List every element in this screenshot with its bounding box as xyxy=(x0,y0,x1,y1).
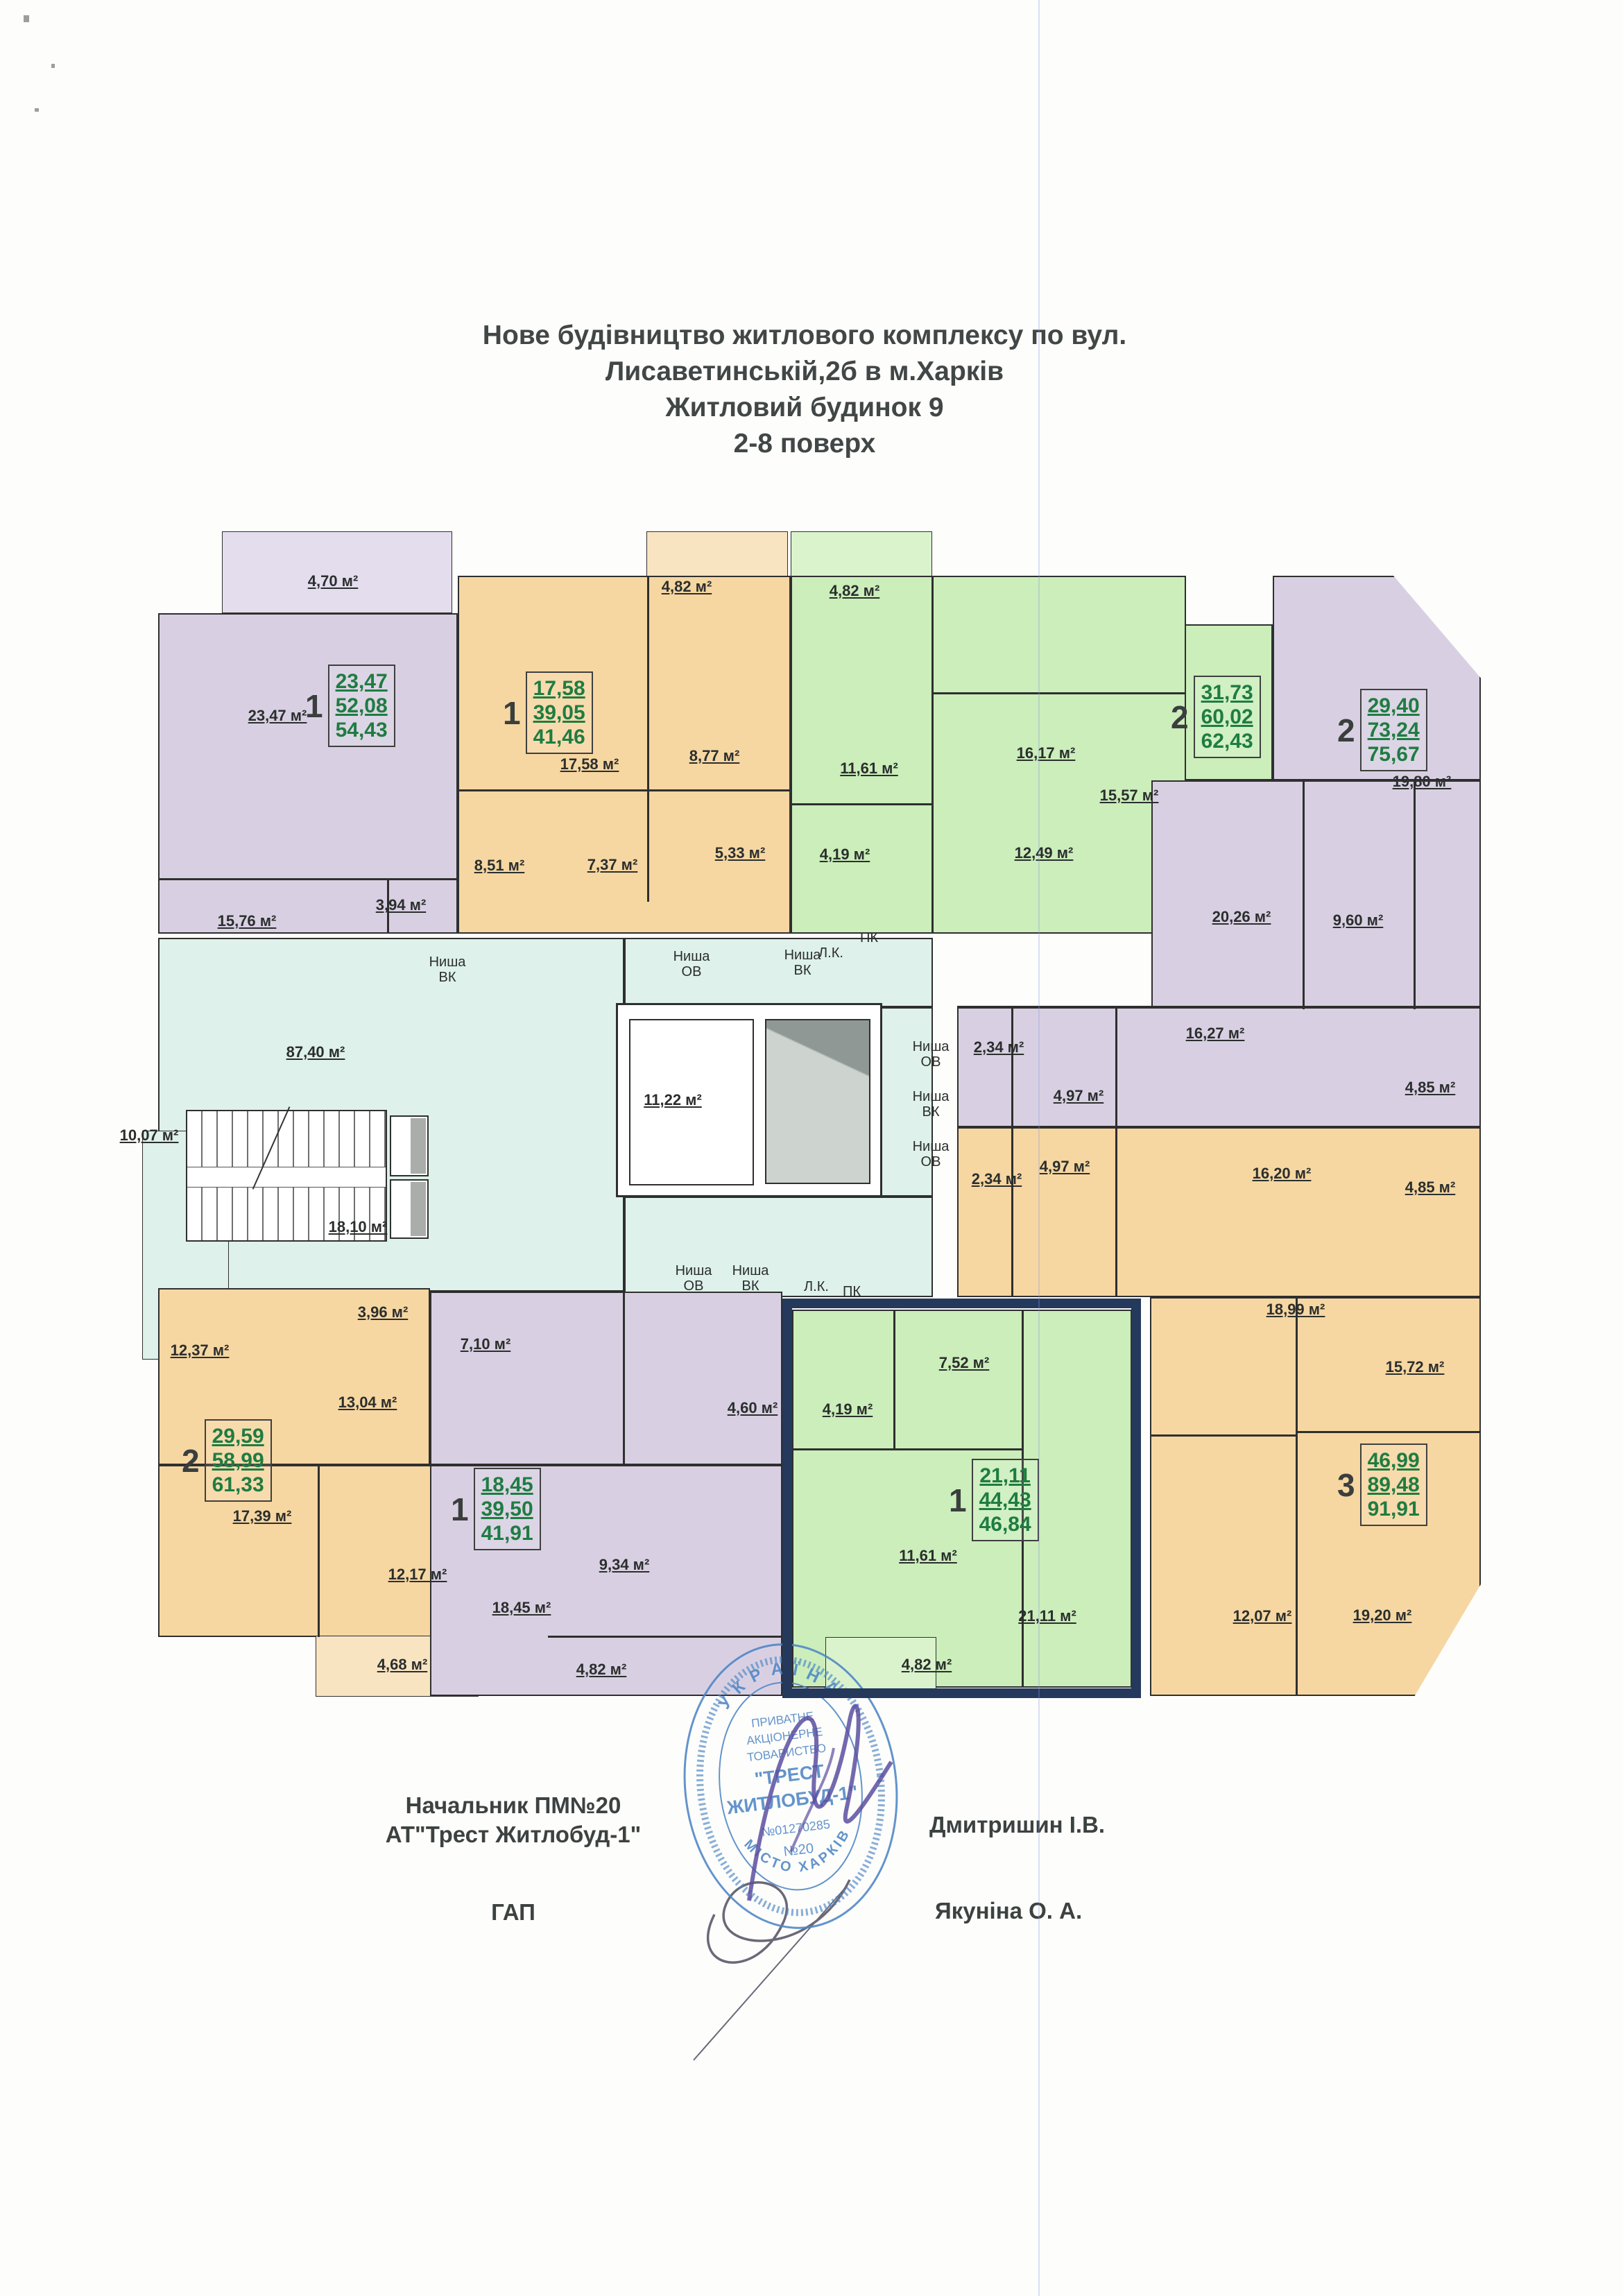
living-area: 29,40 xyxy=(1368,694,1420,718)
living-area: 31,73 xyxy=(1201,680,1253,705)
apartment-tag: 2 29,40 73,24 75,67 xyxy=(1337,689,1427,771)
area-label: 4,68 м² xyxy=(377,1656,428,1674)
area-label: 4,97 м² xyxy=(1040,1158,1090,1176)
scan-speck xyxy=(51,64,55,68)
area-label: 15,76 м² xyxy=(218,912,277,930)
apartment-tag: 1 17,58 39,05 41,46 xyxy=(503,671,593,754)
area-label: 8,77 м² xyxy=(689,747,740,765)
niche-label: Ниша ВК xyxy=(732,1263,769,1294)
apartment-areas-box: 29,59 58,99 61,33 xyxy=(205,1419,272,1502)
total-area: 91,91 xyxy=(1368,1497,1420,1521)
wall xyxy=(1150,1434,1296,1437)
area-label: 15,57 м² xyxy=(1100,787,1159,805)
title-line: 2-8 поверх xyxy=(319,426,1290,462)
selected-apartment-outline xyxy=(782,1299,1141,1698)
area-label: 12,37 м² xyxy=(171,1342,230,1360)
room-region-apartment xyxy=(957,1127,1481,1297)
wall xyxy=(647,577,649,902)
apartment-number: 3 xyxy=(1337,1466,1355,1504)
elevator-shaft-gray xyxy=(765,1019,870,1184)
area-label: 20,26 м² xyxy=(1212,908,1271,926)
apartment-number: 2 xyxy=(1171,699,1189,736)
apartment-area: 73,24 xyxy=(1368,718,1420,742)
stamp-line: ЖИТЛОБУД-1" xyxy=(725,1781,859,1818)
niche-label: Ниша ОВ xyxy=(673,949,710,979)
area-label: 11,22 м² xyxy=(644,1091,702,1109)
wall xyxy=(1115,1007,1117,1297)
area-label: 15,72 м² xyxy=(1386,1358,1445,1376)
room-region-apartment xyxy=(158,613,458,934)
stamp-line: №20 xyxy=(782,1841,814,1860)
area-label: 11,61 м² xyxy=(840,760,898,778)
wall xyxy=(158,878,458,880)
signatory-name: Дмитришин І.В. xyxy=(929,1812,1165,1838)
area-label: 4,60 м² xyxy=(728,1399,778,1417)
scan-speck xyxy=(35,108,39,112)
niche-label: Ниша ОВ xyxy=(676,1263,712,1294)
stair-landing xyxy=(187,1167,386,1188)
apartment-tag: 2 29,59 58,99 61,33 xyxy=(182,1419,272,1502)
room-region-apartment xyxy=(430,1292,782,1465)
area-label: 13,04 м² xyxy=(338,1394,397,1412)
wall xyxy=(623,1292,625,1465)
title-line: Лисаветинській,2б в м.Харків xyxy=(319,354,1290,390)
apartment-number: 1 xyxy=(305,687,323,725)
living-area: 46,99 xyxy=(1368,1448,1420,1473)
wall xyxy=(1296,1431,1481,1433)
apartment-areas-box: 23,47 52,08 54,43 xyxy=(328,665,395,747)
area-label: 19,80 м² xyxy=(1393,773,1452,791)
area-label: 19,20 м² xyxy=(1353,1607,1412,1625)
room-region-apartment xyxy=(1150,1297,1481,1696)
wall xyxy=(1303,780,1305,1009)
wall xyxy=(791,803,933,805)
title-line: Житловий будинок 9 xyxy=(319,390,1290,426)
area-label: 4,70 м² xyxy=(308,572,359,590)
wall xyxy=(1414,780,1416,1009)
total-area: 41,91 xyxy=(481,1521,533,1545)
room-region-apartment xyxy=(791,576,1186,934)
niche-label: Ниша ВК xyxy=(913,1089,950,1120)
signatory-role: ГАП xyxy=(482,1899,544,1926)
area-label: 87,40 м² xyxy=(286,1043,345,1061)
area-label: 17,39 м² xyxy=(233,1507,292,1525)
living-area: 17,58 xyxy=(533,676,585,701)
apartment-number: 1 xyxy=(451,1491,469,1528)
area-label: 7,10 м² xyxy=(461,1335,511,1353)
niche-label: Л.К. xyxy=(818,945,843,961)
apartment-areas-box: 31,73 60,02 62,43 xyxy=(1194,676,1261,758)
area-label: 9,34 м² xyxy=(599,1556,650,1574)
apartment-area: 89,48 xyxy=(1368,1473,1420,1497)
area-label: 4,85 м² xyxy=(1405,1179,1456,1197)
elevator-shaft xyxy=(390,1179,429,1239)
elevator-car xyxy=(411,1118,426,1174)
area-label: 4,85 м² xyxy=(1405,1079,1456,1097)
living-area: 23,47 xyxy=(336,669,388,694)
area-label: 10,07 м² xyxy=(120,1126,179,1145)
apartment-number: 2 xyxy=(1337,712,1355,749)
wall xyxy=(318,1465,320,1637)
living-area: 29,59 xyxy=(212,1424,264,1448)
apartment-area: 58,99 xyxy=(212,1448,264,1473)
area-label: 9,60 м² xyxy=(1333,911,1384,929)
wall xyxy=(957,1006,1481,1008)
total-area: 54,43 xyxy=(336,718,388,742)
niche-label: Ниша ОВ xyxy=(913,1139,950,1170)
apartment-area: 60,02 xyxy=(1201,705,1253,729)
area-label: 2,34 м² xyxy=(974,1038,1024,1056)
area-label: 3,94 м² xyxy=(376,896,427,914)
area-label: 4,19 м² xyxy=(820,846,870,864)
wall xyxy=(1296,1297,1298,1696)
area-label: 18,99 м² xyxy=(1266,1301,1325,1319)
apartment-tag: 1 18,45 39,50 41,91 xyxy=(451,1468,541,1550)
area-label: 17,58 м² xyxy=(560,755,619,773)
niche-label: Л.К. xyxy=(804,1279,829,1294)
niche-label: ПК xyxy=(860,930,878,945)
total-area: 62,43 xyxy=(1201,729,1253,753)
apartment-tag: 3 46,99 89,48 91,91 xyxy=(1337,1443,1427,1526)
niche-label: ПК xyxy=(843,1284,861,1299)
area-label: 16,27 м² xyxy=(1186,1025,1245,1043)
total-area: 41,46 xyxy=(533,725,585,749)
area-label: 18,10 м² xyxy=(329,1218,388,1236)
area-label: 12,17 м² xyxy=(388,1566,447,1584)
apartment-area: 39,50 xyxy=(481,1497,533,1521)
area-label: 7,37 м² xyxy=(587,856,638,874)
apartment-areas-box: 17,58 39,05 41,46 xyxy=(526,671,593,754)
area-label: 5,33 м² xyxy=(715,844,766,862)
area-label: 23,47 м² xyxy=(248,707,307,725)
living-area: 18,45 xyxy=(481,1473,533,1497)
signatory-name: Якуніна О. А. xyxy=(935,1898,1157,1924)
area-label: 12,07 м² xyxy=(1233,1607,1292,1625)
elevator-car xyxy=(411,1182,426,1236)
area-label: 16,17 м² xyxy=(1017,744,1076,762)
scanned-floor-plan-page: Нове будівництво житлового комплексу по … xyxy=(0,0,1623,2296)
apartment-tag: 1 23,47 52,08 54,43 xyxy=(305,665,395,747)
apartment-areas-box: 18,45 39,50 41,91 xyxy=(474,1468,541,1550)
area-label: 4,82 м² xyxy=(576,1661,627,1679)
signatory-role: Начальник ПМ№20 xyxy=(385,1792,642,1819)
area-label: 16,20 м² xyxy=(1253,1165,1312,1183)
niche-label: Ниша ВК xyxy=(429,954,466,985)
apartment-areas-box: 29,40 73,24 75,67 xyxy=(1360,689,1427,771)
elevator-shaft xyxy=(390,1115,429,1176)
apartment-tag: 2 31,73 60,02 62,43 xyxy=(1171,676,1261,758)
apartment-number: 2 xyxy=(182,1442,200,1480)
signatory-org: АТ"Трест Житлобуд-1" xyxy=(375,1822,652,1848)
total-area: 61,33 xyxy=(212,1473,264,1497)
wall xyxy=(933,692,1186,694)
apartment-number: 1 xyxy=(503,694,521,732)
apartment-area: 39,05 xyxy=(533,701,585,725)
area-label: 4,97 м² xyxy=(1054,1087,1104,1105)
wall xyxy=(957,1126,1481,1128)
scan-speck xyxy=(24,15,29,22)
niche-label: Ниша ОВ xyxy=(913,1039,950,1070)
wall xyxy=(430,1464,782,1466)
area-label: 4,82 м² xyxy=(830,582,880,600)
drawing-title: Нове будівництво житлового комплексу по … xyxy=(319,318,1290,462)
room-region-corridor xyxy=(624,1197,933,1297)
apartment-area: 52,08 xyxy=(336,694,388,718)
area-label: 3,96 м² xyxy=(358,1303,409,1321)
niche-label: Ниша ВК xyxy=(784,948,821,978)
area-label: 18,45 м² xyxy=(492,1599,551,1617)
total-area: 75,67 xyxy=(1368,742,1420,766)
apartment-areas-box: 46,99 89,48 91,91 xyxy=(1360,1443,1427,1526)
room-region-corridor xyxy=(624,938,933,1007)
wall xyxy=(458,789,791,791)
area-label: 4,82 м² xyxy=(662,578,712,596)
scan-fold-line xyxy=(1038,0,1040,2296)
room-region-apartment xyxy=(1151,780,1481,1009)
area-label: 2,34 м² xyxy=(972,1170,1022,1188)
stamp-line: №01270285 xyxy=(761,1817,831,1840)
title-line: Нове будівництво житлового комплексу по … xyxy=(319,318,1290,354)
area-label: 8,51 м² xyxy=(474,857,525,875)
area-label: 12,49 м² xyxy=(1015,844,1074,862)
wall xyxy=(931,577,934,932)
room-region-apartment xyxy=(458,576,791,934)
